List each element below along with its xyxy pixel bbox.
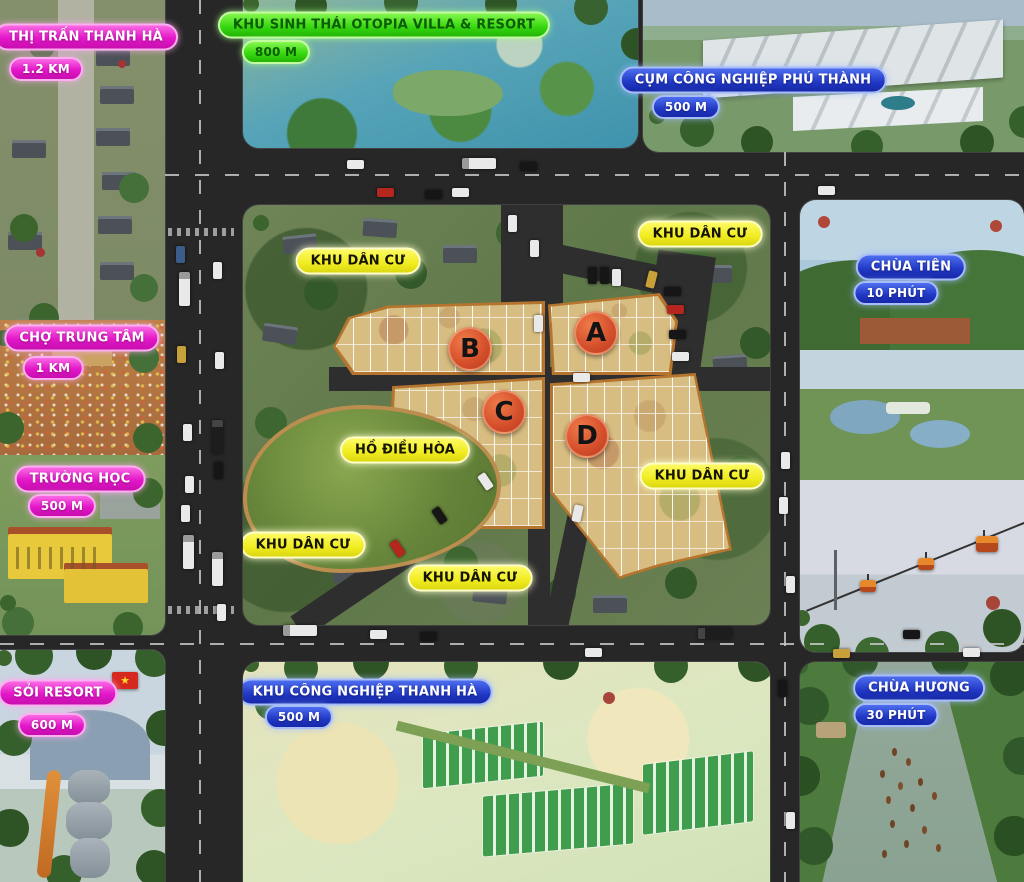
vehicle [370,630,387,639]
label-school: TRƯỜNG HỌC [15,466,146,493]
cable-car-icon [918,558,934,570]
vehicle [667,305,684,314]
label-residential-3: KHU DÂN CƯ [640,463,765,490]
vehicle [183,424,192,441]
label-residential-4: KHU DÂN CƯ [243,532,365,559]
factory-pond [881,96,915,110]
trees [243,662,259,672]
house [100,262,134,280]
panel-soi-resort: ★ SỎI RESORT 600 M [0,650,165,882]
resort-lake [910,420,970,448]
house [262,323,298,346]
road-centerline [0,643,1024,645]
vehicle [600,267,609,284]
label-phu-thanh: CỤM CÔNG NGHIỆP PHÚ THÀNH [620,67,887,94]
label-residential-1: KHU DÂN CƯ [296,248,421,275]
distance-otopia: 800 M [242,40,310,64]
vehicle [530,240,539,257]
vehicle [176,246,185,263]
panel-town-aerial [0,0,165,635]
vehicle [213,262,222,279]
trees [243,0,259,12]
vehicle [181,505,190,522]
flower-tree [603,692,615,704]
vehicle [963,648,980,657]
plot-area-b [333,301,545,375]
house [593,595,627,613]
factory-roofs [793,87,983,131]
panel-chua-huong: CHÙA HƯƠNG 30 PHÚT [800,662,1024,882]
house [443,245,477,263]
plot-marker-a: A [574,311,618,355]
label-chua-tien: CHÙA TIÊN [856,254,966,281]
label-town: THỊ TRẤN THANH HÀ [0,24,178,51]
label-otopia: KHU SINH THÁI OTOPIA VILLA & RESORT [218,12,550,39]
crosswalk [168,228,234,236]
road-centerline [784,152,786,882]
distance-chua-tien: 10 PHÚT [853,281,938,305]
road-centerline [165,174,1024,176]
vehicle [212,420,223,454]
vehicle [818,186,835,195]
resort-buildings [886,402,930,414]
plot-marker-d: D [565,414,609,458]
village-houses [816,722,846,738]
vehicle [669,330,686,339]
plot-marker-b: B [448,327,492,371]
trees [253,215,269,231]
label-market: CHỢ TRUNG TÂM [4,325,159,352]
vehicle [833,649,850,658]
vehicle [183,535,194,569]
vehicle [452,188,469,197]
vehicle [283,625,317,636]
cable-car-scene [800,480,1024,652]
vehicle [217,604,226,621]
vehicle [177,346,186,363]
vehicle [672,352,689,361]
vehicle [212,552,223,586]
sculpture-arm [36,770,61,879]
plot-area-b-parcels [336,304,542,372]
vehicle [786,812,795,829]
masterplan-poster: A B C D KHU DÂN CƯ KHU DÂN CƯ KHU DÂN CƯ… [0,0,1024,882]
vehicle [179,272,190,306]
distance-kcn-thanh-ha: 500 M [265,705,333,729]
vehicle [779,497,788,514]
stone-sculpture [68,770,110,804]
house [98,216,132,234]
vehicle [698,628,732,639]
vehicle [520,162,537,171]
vehicle [377,188,394,197]
stone-sculpture [66,802,112,840]
plot-marker-c: C [482,390,526,434]
cable-pylon [834,550,837,610]
house [100,86,134,104]
vehicle [462,158,496,169]
panel-kcn-thanh-ha: KHU CÔNG NGHIỆP THANH HÀ 500 M [243,662,770,882]
house [102,172,136,190]
vehicle [508,215,517,232]
vehicle [215,352,224,369]
distance-market: 1 KM [23,356,84,380]
house [8,232,42,250]
panel-chua-tien: CHÙA TIÊN 10 PHÚT [800,200,1024,652]
distance-soi-resort: 600 M [18,713,86,737]
label-residential-2: KHU DÂN CƯ [638,221,763,248]
distance-school: 500 M [28,494,96,518]
distance-chua-huong: 30 PHÚT [853,703,938,727]
vehicle [664,287,681,296]
vehicle [786,576,795,593]
vehicle [903,630,920,639]
panel-masterplan: A B C D KHU DÂN CƯ KHU DÂN CƯ KHU DÂN CƯ… [243,205,770,625]
stone-sculpture [70,838,110,878]
trees [0,650,12,666]
house [96,128,130,146]
trees [800,610,810,626]
industrial-buildings [483,783,633,856]
flower-tree [818,216,830,228]
vehicle [588,267,597,284]
eco-resort-scene [800,350,1024,480]
vehicle [214,462,223,479]
school-building-wing [64,563,148,603]
flower-tree [990,220,1002,232]
distance-phu-thanh: 500 M [652,95,720,119]
vehicle [781,452,790,469]
vehicle [185,476,194,493]
vehicle [778,680,787,697]
trees [800,662,808,674]
label-soi-resort: SỎI RESORT [0,680,118,707]
school-windows [16,547,104,569]
vehicle [573,373,590,382]
vehicle [585,648,602,657]
label-residential-5: KHU DÂN CƯ [408,565,533,592]
temple-grounds [860,318,970,344]
flower-tree [36,248,45,257]
vehicle [347,160,364,169]
label-lake: HỒ ĐIỀU HÒA [340,437,470,464]
vehicle [420,632,437,641]
distance-town: 1.2 KM [9,57,83,81]
label-kcn-thanh-ha: KHU CÔNG NGHIỆP THANH HÀ [243,679,492,706]
flower-tree [986,596,1000,610]
road-centerline [199,0,201,882]
trees [0,595,16,611]
boats [892,748,897,756]
house [12,140,46,158]
resort-island [393,70,503,116]
cable-car-icon [976,536,998,552]
house [362,218,397,238]
vehicle [534,315,543,332]
cable-car-icon [860,580,876,592]
label-chua-huong: CHÙA HƯƠNG [853,675,985,702]
vehicle [425,190,442,199]
industrial-buildings [643,751,753,835]
vehicle [612,269,621,286]
flower-tree [118,60,126,68]
